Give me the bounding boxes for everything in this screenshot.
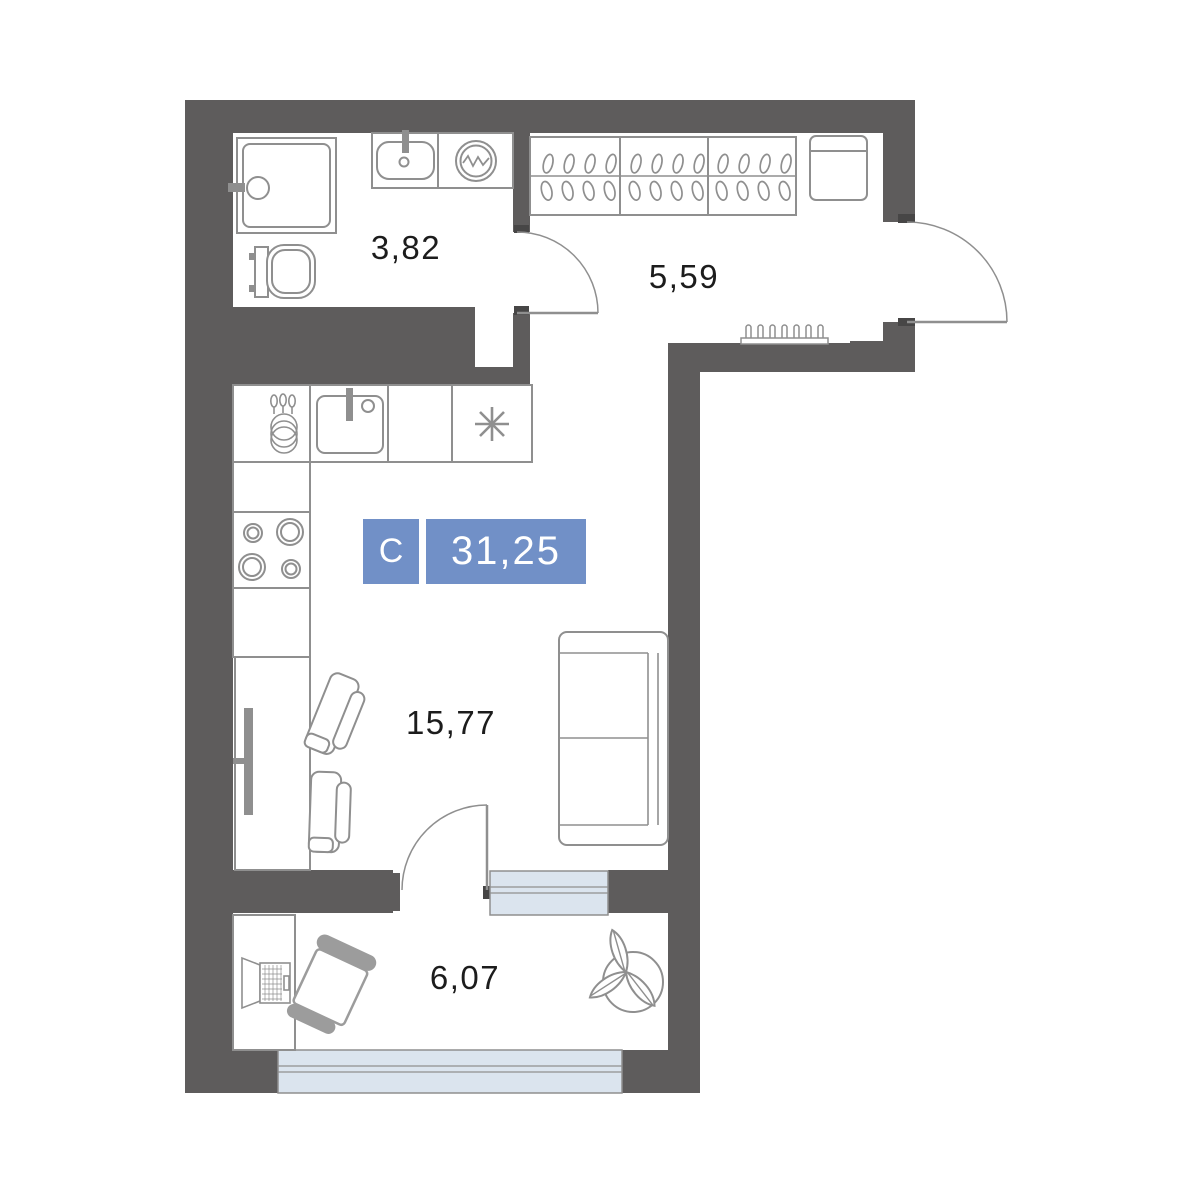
dining-chair-icon xyxy=(303,671,370,760)
wall-balcony-right xyxy=(668,913,700,1053)
door-arc xyxy=(402,805,487,890)
wall-living-right xyxy=(668,372,700,913)
balcony-door xyxy=(402,805,487,890)
kitchen-sink-icon xyxy=(317,388,383,453)
toilet-icon xyxy=(249,245,315,298)
kitchen-counter-side xyxy=(233,462,310,657)
door-arc xyxy=(517,232,598,313)
hallway-area-label: 5,59 xyxy=(649,258,719,296)
wall-balcony-door-post xyxy=(393,873,400,911)
wall-balcony-top-left xyxy=(233,870,393,913)
dining-chair-icon xyxy=(309,771,352,852)
wall-bathroom-door-post-lower xyxy=(513,313,530,369)
living-room-furniture xyxy=(233,632,668,870)
bathroom-area-label: 3,82 xyxy=(371,229,441,267)
hallway-cabinet-icon xyxy=(810,136,867,200)
wall-balcony-top-right xyxy=(608,870,700,913)
shower-icon xyxy=(228,138,336,233)
sofa-icon xyxy=(559,632,668,845)
washing-machine-icon xyxy=(456,141,496,181)
plant-icon xyxy=(585,928,663,1012)
wall-left xyxy=(185,100,233,1093)
wall-top xyxy=(185,100,915,133)
balcony-window-inner xyxy=(490,871,608,915)
entrance-door xyxy=(907,222,1007,322)
wall-bottom-left-block xyxy=(185,1050,278,1093)
living-kitchen-area-label: 15,77 xyxy=(406,704,496,742)
floor-plan-drawing xyxy=(0,0,1200,1200)
wall-bathroom-bar xyxy=(475,367,530,385)
wall-entrance-lower xyxy=(883,322,915,372)
balcony-window-outer xyxy=(278,1050,622,1093)
total-area-badge: 31,25 xyxy=(426,519,586,584)
wall-bathroom-right-post xyxy=(513,133,530,232)
wall-hallway-bottom xyxy=(668,343,885,372)
apartment-type-badge: С xyxy=(363,519,419,584)
bathroom-fixtures xyxy=(228,130,513,298)
bathroom-door xyxy=(517,232,598,313)
door-arc xyxy=(907,222,1007,322)
wardrobe-icon xyxy=(530,137,796,215)
wall-bottom-right-block xyxy=(622,1050,700,1093)
laptop-icon xyxy=(242,958,290,1008)
apartment-area-badge: С 31,25 xyxy=(363,519,586,584)
office-chair-icon xyxy=(283,932,379,1041)
balcony-area-label: 6,07 xyxy=(430,959,500,997)
wall-right-upper xyxy=(883,133,915,222)
radiator-icon xyxy=(741,325,828,344)
fridge-asterisk-icon xyxy=(475,407,509,441)
wall-bathroom-shaft xyxy=(233,307,475,385)
floor-plan: 3,82 5,59 15,77 6,07 С 31,25 xyxy=(0,0,1200,1200)
